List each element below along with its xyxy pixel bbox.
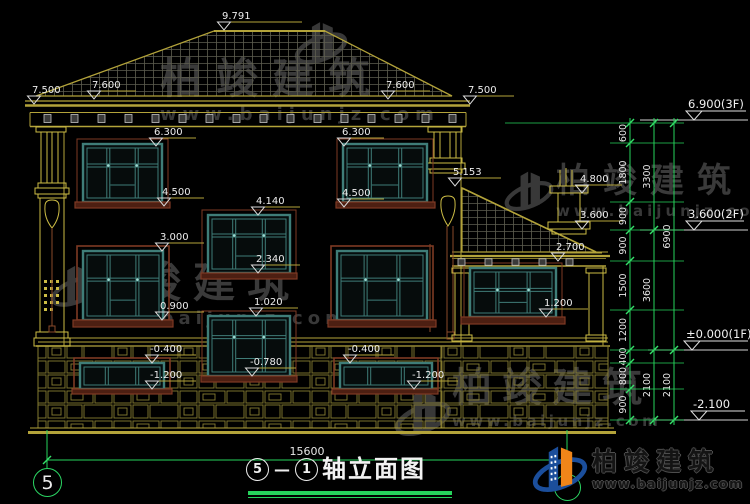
- elevation-value: 7.600: [92, 80, 121, 91]
- floor-level-marker: 6.900(3F): [640, 97, 748, 120]
- dentil: [485, 259, 492, 266]
- company-logo: 柏竣建筑 www.baijunjz.com: [528, 436, 750, 504]
- elevation-marker: 3.000: [155, 232, 204, 251]
- dentil: [422, 115, 429, 123]
- elevation-value: 1.200: [544, 298, 573, 309]
- chain-dimension-value: 3300: [642, 164, 653, 188]
- dentil: [179, 115, 186, 123]
- elevation-value: 6.300: [342, 127, 371, 138]
- elevation-value: 4.140: [256, 196, 285, 207]
- title-axis-bubble-start: 5: [246, 458, 269, 481]
- dentil: [449, 115, 456, 123]
- dentil: [98, 115, 105, 123]
- elevation-value: -0.400: [348, 344, 380, 355]
- drawing-title: 5 — 1 轴立面图: [246, 457, 426, 481]
- floor-level-marker: -2.100: [655, 397, 748, 420]
- elevation-value: 0.900: [160, 301, 189, 312]
- elevation-marker: 4.140: [251, 196, 300, 215]
- elevation-value: 7.500: [32, 85, 61, 96]
- wing-roof: [450, 188, 610, 266]
- elevation-marker: 4.800: [575, 174, 622, 193]
- dentil: [152, 115, 159, 123]
- elevation-value: 4.500: [162, 187, 191, 198]
- elevation-value: 3.600: [580, 210, 609, 221]
- elevation-value: 2.340: [256, 254, 285, 265]
- dentil: [539, 259, 546, 266]
- chain-dimension-value: 2100: [662, 373, 673, 397]
- elevation-value: 4.500: [342, 188, 371, 199]
- floor-level-value: 3.600(2F): [688, 207, 744, 221]
- title-underline-thin: [248, 497, 452, 498]
- main-eave-cornice: [25, 101, 470, 127]
- chain-dimension-value: 1200: [618, 318, 629, 342]
- elevation-value: 5.153: [453, 167, 482, 178]
- title-dash: —: [274, 460, 290, 479]
- elevation-value: 2.700: [556, 242, 585, 253]
- elevation-value: 4.800: [580, 174, 609, 185]
- floor-level-marker: ±0.000(1F): [648, 327, 750, 350]
- chain-dimension-value: 2100: [642, 373, 653, 397]
- dentil: [44, 115, 51, 123]
- elevation-value: 3.000: [160, 232, 189, 243]
- dentil: [206, 115, 213, 123]
- dimension-chain: 600180090090015001200400800900: [618, 118, 634, 425]
- elevation-drawing-canvas: 柏竣建筑 www.baijunjz.com 柏竣建筑 www.baijunjz.…: [0, 0, 750, 504]
- dentil: [566, 259, 573, 266]
- title-axis-bubble-end: 1: [295, 458, 318, 481]
- dimension-chain: 69002100: [662, 118, 678, 425]
- chain-dimension-value: 1500: [618, 273, 629, 297]
- elevation-value: 1.020: [254, 297, 283, 308]
- window-wing: [461, 263, 565, 324]
- elevation-value: -1.200: [150, 370, 182, 381]
- title-underline: [248, 491, 452, 495]
- elevation-marker: 7.500: [463, 85, 514, 104]
- elevation-value: 9.791: [222, 11, 251, 22]
- chain-dimension-value: 900: [618, 236, 629, 254]
- chain-dimension-value: 800: [618, 367, 629, 385]
- chain-dimension-value: 1800: [618, 160, 629, 184]
- window-stair-upper: [201, 210, 297, 279]
- elevation-value: -1.200: [412, 370, 444, 381]
- floor-level-value: -2.100: [693, 397, 730, 411]
- company-logo-icon: [530, 436, 590, 502]
- chain-dimension-value: 6900: [662, 224, 673, 248]
- downspout-left: [49, 228, 55, 332]
- dentil: [71, 115, 78, 123]
- company-logo-url: www.baijunjz.com: [592, 476, 744, 491]
- chain-dimension-value: 600: [618, 124, 629, 142]
- dentil: [341, 115, 348, 123]
- window-stair-lower: [201, 311, 297, 382]
- dimension-chain: 330036002100: [642, 118, 658, 425]
- cad-linework: 9.7917.5007.6007.6007.5006.3004.5006.300…: [0, 0, 750, 504]
- elevation-value: 7.500: [468, 85, 497, 96]
- elevation-marker: 5.153: [448, 167, 501, 186]
- dentil: [233, 115, 240, 123]
- chain-dimension-value: 900: [618, 207, 629, 225]
- elevation-value: -0.400: [150, 344, 182, 355]
- elevation-value: 6.300: [154, 127, 183, 138]
- dentil: [368, 115, 375, 123]
- elevation-value: -0.780: [250, 357, 282, 368]
- window-1f-right: [328, 246, 436, 327]
- dentil: [260, 115, 267, 123]
- company-logo-brand: 柏竣建筑: [592, 442, 720, 478]
- elevation-marker: 9.791: [217, 11, 302, 30]
- dentil: [395, 115, 402, 123]
- dentil: [125, 115, 132, 123]
- dentil: [512, 259, 519, 266]
- chain-dimension-value: 3600: [642, 278, 653, 302]
- floor-level-value: ±0.000(1F): [686, 327, 750, 341]
- elevation-marker: 1.020: [249, 297, 298, 316]
- chain-dimension-value: 900: [618, 395, 629, 413]
- floor-level-value: 6.900(3F): [688, 97, 744, 111]
- dentil: [287, 115, 294, 123]
- window-2f-left: [75, 139, 170, 208]
- elevation-marker: 3.600: [575, 210, 622, 229]
- dentil: [314, 115, 321, 123]
- floor-level-marker: 3.600(2F): [640, 207, 748, 230]
- dentil: [458, 259, 465, 266]
- title-text: 轴立面图: [322, 457, 426, 481]
- elevation-value: 7.600: [386, 80, 415, 91]
